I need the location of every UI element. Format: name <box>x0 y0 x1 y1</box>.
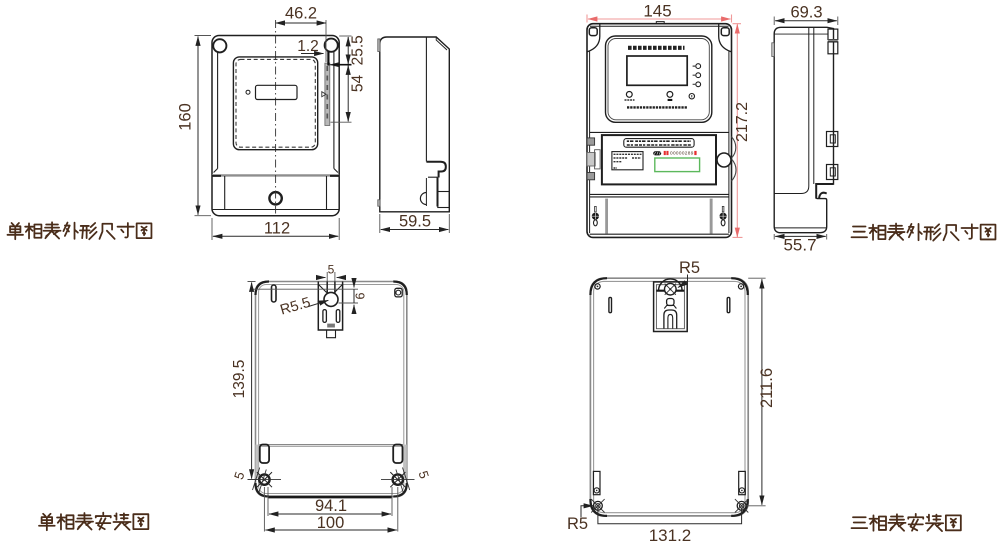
svg-text:00000289: 00000289 <box>670 151 694 156</box>
svg-text:145: 145 <box>643 2 671 21</box>
svg-text:131.2: 131.2 <box>649 526 692 545</box>
svg-text:5: 5 <box>328 263 335 277</box>
svg-text:55.7: 55.7 <box>783 236 816 255</box>
svg-text:69.3: 69.3 <box>790 4 822 22</box>
svg-text:6: 6 <box>354 292 368 299</box>
svg-text:160: 160 <box>177 103 195 131</box>
svg-text:25.5: 25.5 <box>350 35 367 65</box>
svg-text:139.5: 139.5 <box>231 360 248 399</box>
svg-text:46.2: 46.2 <box>285 5 317 23</box>
svg-text:59.5: 59.5 <box>399 213 431 231</box>
svg-text:211.6: 211.6 <box>758 368 776 408</box>
svg-text:R5: R5 <box>679 259 700 277</box>
svg-text:R5: R5 <box>567 515 588 533</box>
svg-text:100: 100 <box>317 514 345 532</box>
svg-text:54: 54 <box>350 75 367 93</box>
svg-text:1.2: 1.2 <box>297 38 319 55</box>
svg-text:112: 112 <box>264 220 290 238</box>
svg-text:94.1: 94.1 <box>315 497 347 515</box>
svg-text:217.2: 217.2 <box>734 102 751 142</box>
